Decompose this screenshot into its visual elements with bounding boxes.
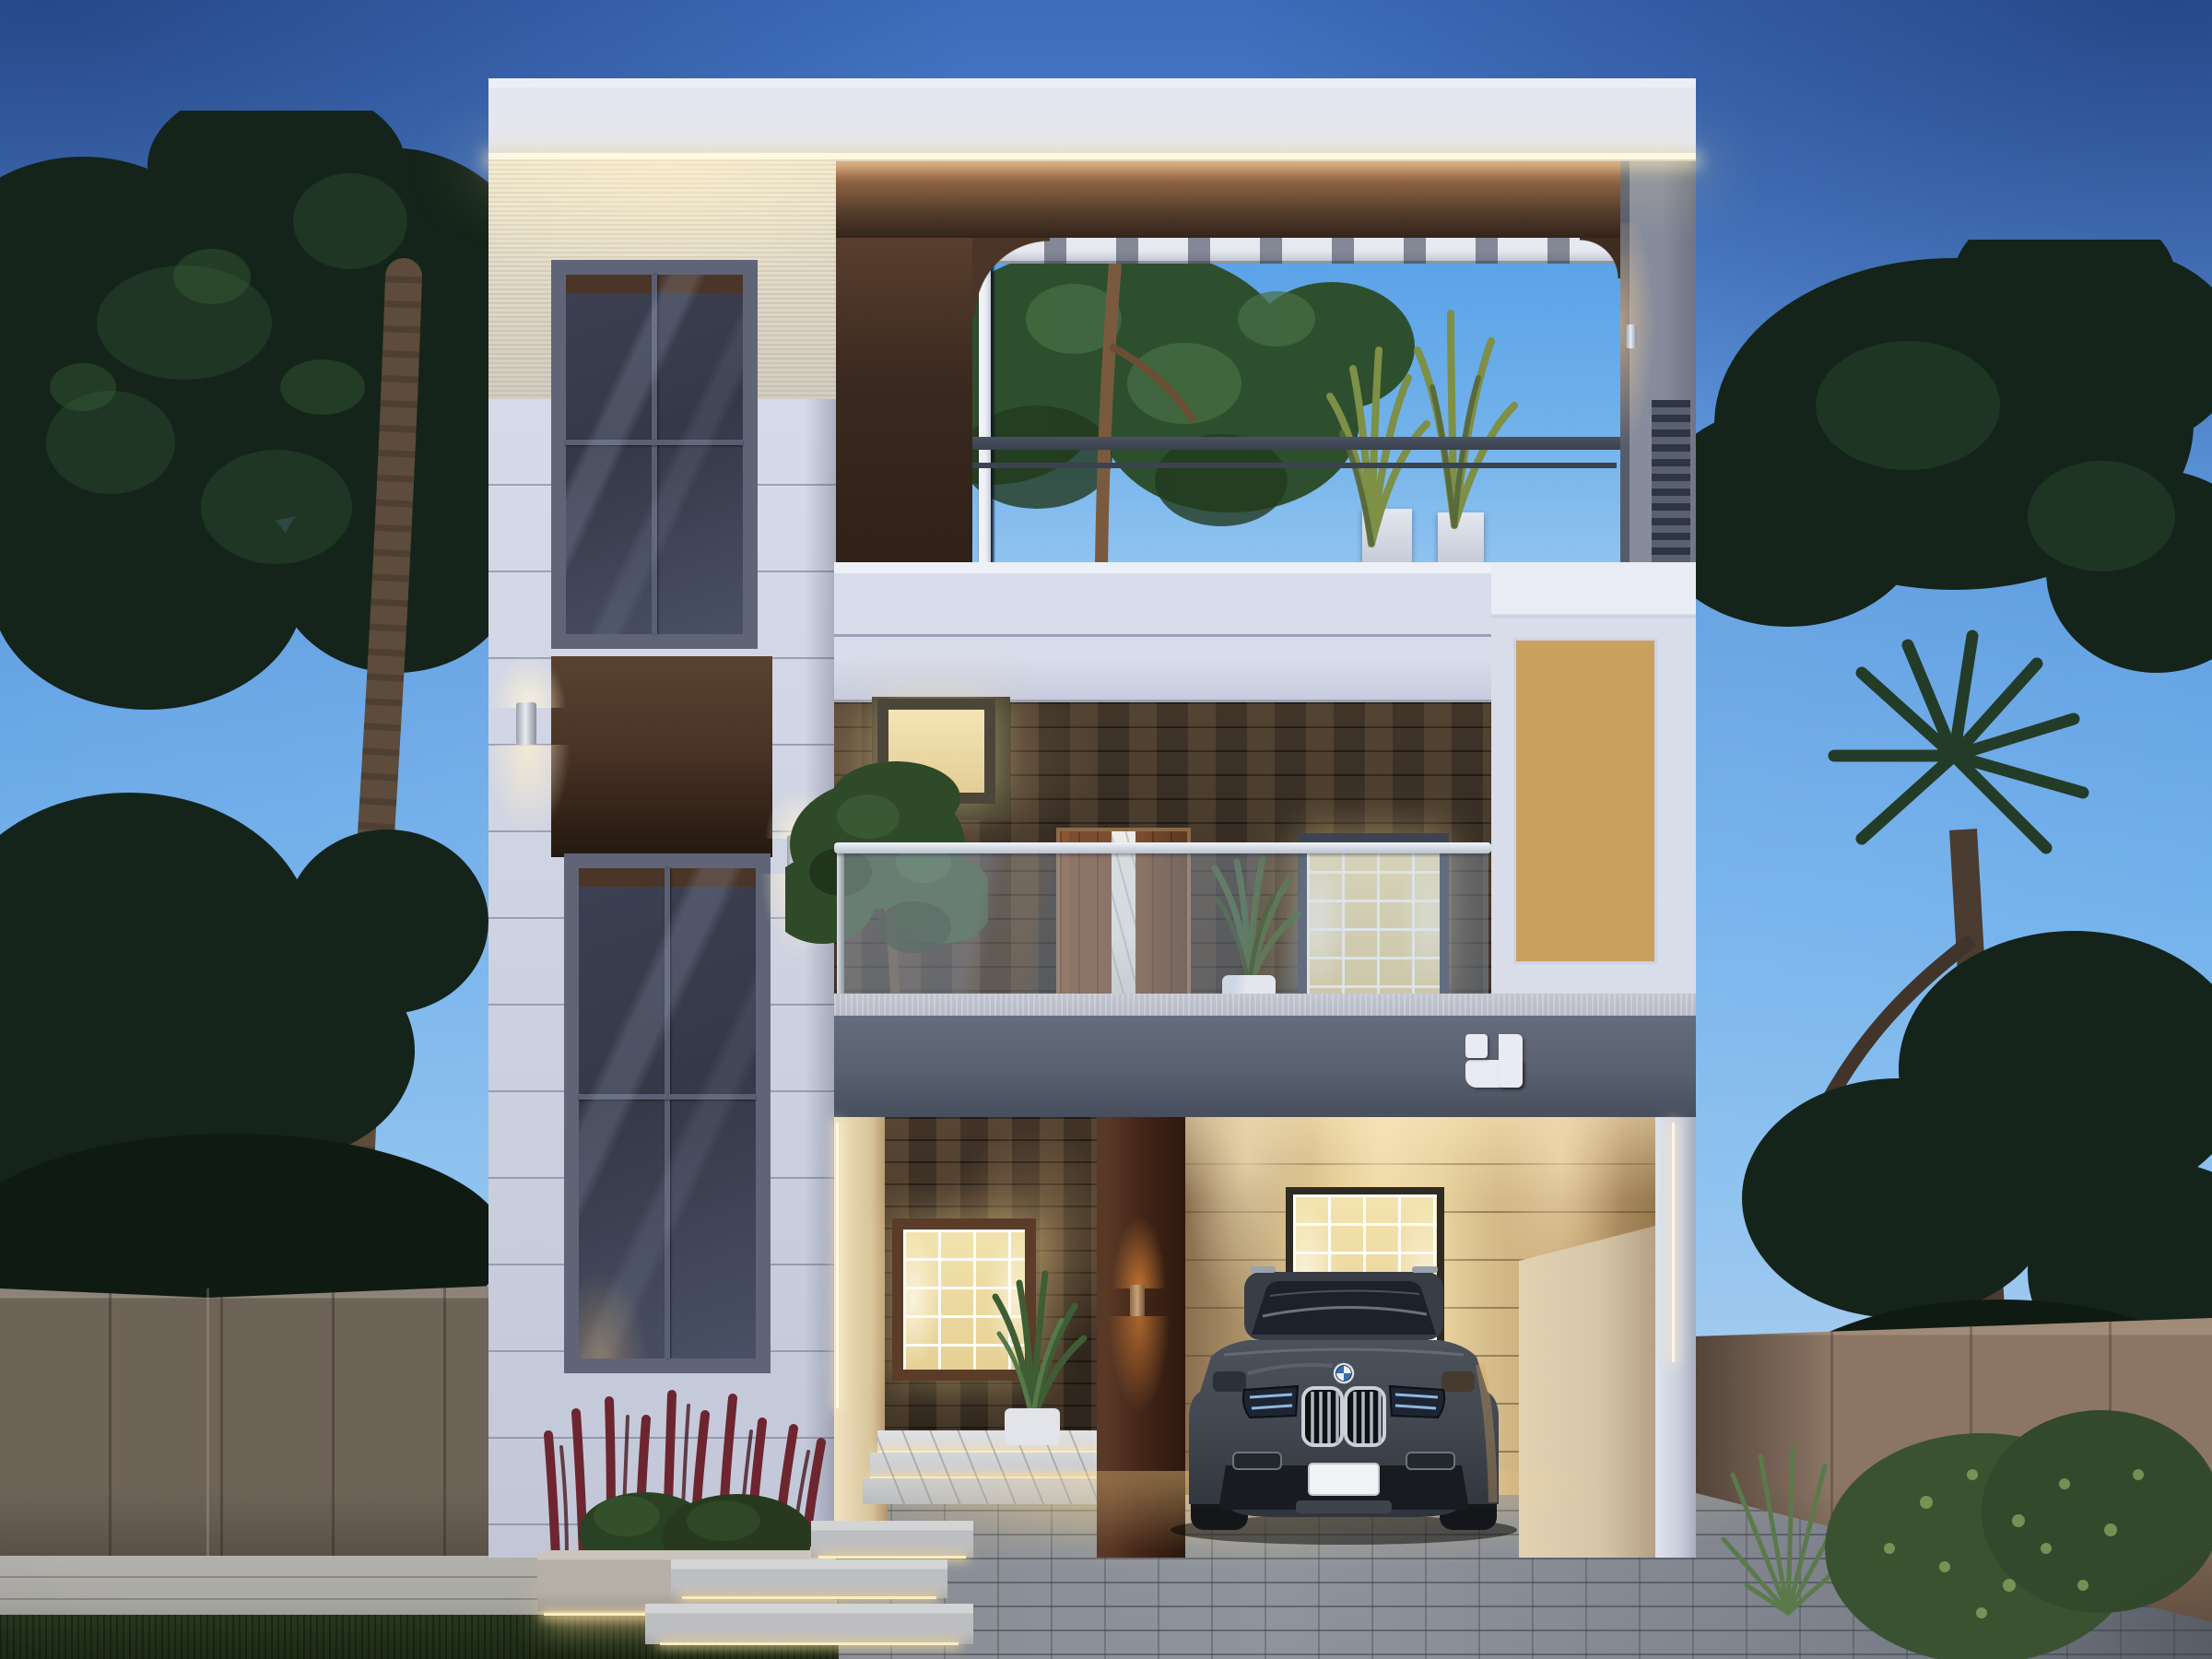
house-logo-square (1465, 1034, 1488, 1058)
sconce-glow (477, 636, 579, 708)
car-mirror (1213, 1371, 1246, 1392)
license-plate (1309, 1464, 1379, 1495)
front-step (811, 1521, 973, 1558)
balustrade-handrail (834, 842, 1491, 853)
red-shrub-planting (530, 1378, 843, 1562)
tower-lower-window (564, 853, 771, 1373)
bmw-suv (1159, 1235, 1528, 1548)
fog-light (1406, 1453, 1454, 1469)
car-headlight (1243, 1386, 1298, 1418)
terrace-railing-posts (964, 437, 1617, 564)
fog-light (1233, 1453, 1281, 1469)
arch-corner-right (1580, 238, 1620, 278)
palm-fronds (1834, 636, 2083, 848)
porch-gray-band (834, 1016, 1696, 1117)
roof-led-strip (488, 153, 1696, 159)
roof-rail (1250, 1266, 1276, 1273)
pillar-louver-vent (1652, 400, 1690, 564)
tower-upper-window (551, 260, 758, 649)
roof-rail (1412, 1266, 1438, 1273)
balustrade-posts (837, 846, 1488, 997)
wall-sconce (516, 702, 536, 745)
bushes-right (1705, 1309, 2212, 1659)
front-step (671, 1559, 947, 1598)
warm-glint (579, 1211, 685, 1359)
step-led (660, 1642, 959, 1645)
roof-parapet (488, 78, 1696, 161)
brown-fascia (834, 159, 1696, 238)
architectural-render (0, 0, 2212, 1659)
terracotta-jali-screen (1516, 641, 1654, 961)
skid-plate (1296, 1500, 1392, 1513)
sconce-glow (474, 745, 582, 865)
slab-lip (834, 994, 1696, 1016)
post (837, 846, 844, 997)
arch-corner-left (972, 238, 1050, 315)
glass-reflection (566, 275, 743, 634)
pillar-sconce-light (1626, 324, 1637, 348)
led-strip-vertical (836, 1123, 839, 1408)
led-strip-vertical (1672, 1123, 1675, 1362)
entrance-potted-plant (975, 1246, 1095, 1445)
house-logo-bracket (1499, 1034, 1523, 1088)
car-headlight (1390, 1386, 1444, 1418)
step-led (682, 1596, 936, 1599)
tower-brown-spandrel (551, 656, 772, 857)
orange-wall-sconce (1130, 1285, 1145, 1316)
car-mirror (1441, 1371, 1475, 1392)
white-plant-pot (1005, 1408, 1060, 1445)
front-step (645, 1604, 973, 1644)
step-led (818, 1556, 966, 1559)
